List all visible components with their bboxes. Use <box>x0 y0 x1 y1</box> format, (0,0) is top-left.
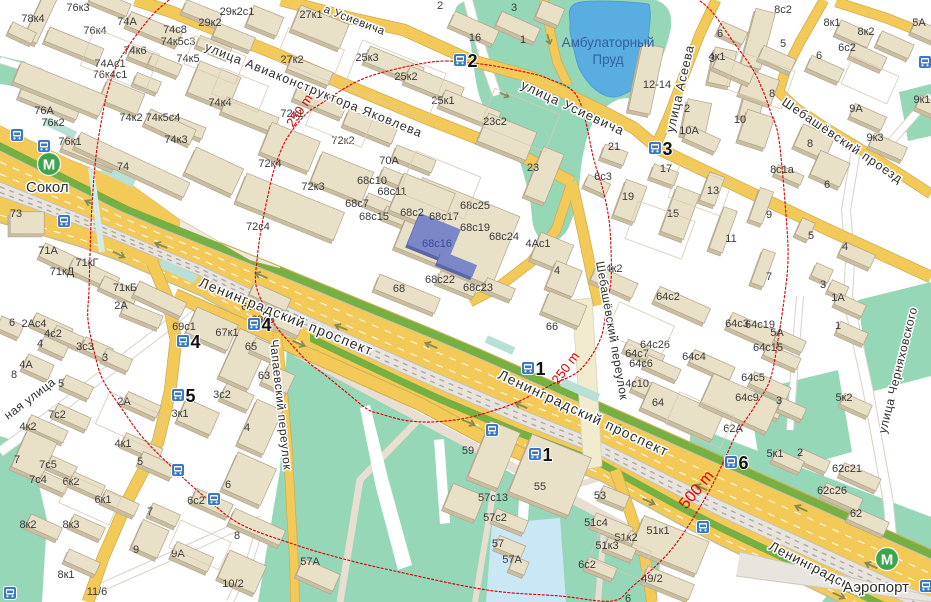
svg-text:5: 5 <box>58 378 64 390</box>
svg-text:55: 55 <box>534 481 546 493</box>
svg-text:6с2: 6с2 <box>187 495 205 507</box>
svg-text:68с17: 68с17 <box>429 211 459 223</box>
svg-text:64с15: 64с15 <box>753 342 783 354</box>
svg-text:1: 1 <box>536 359 546 379</box>
svg-text:13: 13 <box>707 185 719 197</box>
svg-text:4с2: 4с2 <box>44 328 62 340</box>
svg-text:5к2: 5к2 <box>835 392 852 404</box>
svg-text:6с3: 6с3 <box>594 171 612 183</box>
svg-text:62: 62 <box>850 508 862 520</box>
svg-text:Аэропорт: Аэропорт <box>843 579 909 596</box>
svg-text:Сокол: Сокол <box>26 179 69 196</box>
svg-text:4: 4 <box>262 315 272 335</box>
svg-text:76к1: 76к1 <box>58 136 81 148</box>
svg-text:2А: 2А <box>114 300 128 312</box>
svg-text:68с23: 68с23 <box>463 282 493 294</box>
svg-text:57с2: 57с2 <box>483 512 507 524</box>
svg-text:1: 1 <box>835 320 841 332</box>
svg-text:57А: 57А <box>502 554 522 566</box>
svg-text:72к4: 72к4 <box>258 158 281 170</box>
svg-text:3: 3 <box>663 139 673 159</box>
svg-text:57с13: 57с13 <box>478 492 508 504</box>
svg-text:78к4: 78к4 <box>21 13 44 25</box>
svg-text:49/2: 49/2 <box>641 573 662 585</box>
svg-text:4: 4 <box>244 422 250 434</box>
svg-text:8: 8 <box>807 138 813 150</box>
svg-text:7: 7 <box>147 506 153 518</box>
svg-text:74к5с3: 74к5с3 <box>161 36 196 48</box>
svg-text:9: 9 <box>766 209 772 221</box>
svg-text:59: 59 <box>462 445 474 457</box>
svg-text:3: 3 <box>820 279 826 291</box>
svg-text:3: 3 <box>776 395 782 407</box>
svg-text:6: 6 <box>824 179 830 191</box>
svg-text:71А: 71А <box>38 245 58 257</box>
svg-text:72с4: 72с4 <box>246 221 270 233</box>
svg-text:71кД: 71кД <box>50 266 75 278</box>
svg-text:62с26: 62с26 <box>817 485 847 497</box>
svg-text:4Ас1: 4Ас1 <box>525 238 550 250</box>
svg-text:Пруд: Пруд <box>592 52 623 67</box>
svg-text:76к4с1: 76к4с1 <box>93 69 128 81</box>
svg-text:4: 4 <box>842 241 848 253</box>
svg-text:68с15: 68с15 <box>359 211 389 223</box>
svg-text:57А: 57А <box>300 556 320 568</box>
svg-text:68с16: 68с16 <box>422 238 452 250</box>
svg-text:2: 2 <box>468 51 478 71</box>
svg-text:72к3: 72к3 <box>301 181 324 193</box>
svg-text:68с2: 68с2 <box>400 207 424 219</box>
svg-text:71кБ: 71кБ <box>113 282 137 294</box>
svg-text:23: 23 <box>527 162 539 174</box>
svg-text:10А: 10А <box>679 125 699 137</box>
svg-text:67к1: 67к1 <box>215 327 238 339</box>
svg-text:74к2: 74к2 <box>119 112 142 124</box>
svg-text:51с4: 51с4 <box>584 517 608 529</box>
svg-text:5: 5 <box>808 230 814 242</box>
svg-text:53: 53 <box>594 490 606 502</box>
svg-text:6: 6 <box>816 50 822 62</box>
svg-text:68с22: 68с22 <box>425 274 455 286</box>
svg-text:4к1: 4к1 <box>114 438 131 450</box>
svg-text:68с24: 68с24 <box>489 231 519 243</box>
svg-text:3: 3 <box>511 2 517 14</box>
svg-text:7с5: 7с5 <box>39 459 57 471</box>
svg-text:6с2: 6с2 <box>838 42 856 54</box>
svg-text:73: 73 <box>10 208 22 220</box>
svg-text:17: 17 <box>660 163 672 175</box>
svg-text:3с3: 3с3 <box>76 341 94 353</box>
svg-text:8к2: 8к2 <box>857 26 874 38</box>
svg-text:8к1: 8к1 <box>823 17 840 29</box>
svg-text:8к2: 8к2 <box>19 519 36 531</box>
svg-text:76к2: 76к2 <box>41 117 64 129</box>
svg-text:5: 5 <box>186 386 196 406</box>
svg-text:8к1: 8к1 <box>57 569 74 581</box>
svg-text:4: 4 <box>37 338 43 350</box>
svg-text:71кГ: 71кГ <box>75 257 98 269</box>
svg-text:74к5с4: 74к5с4 <box>146 112 181 124</box>
svg-text:27к1: 27к1 <box>299 9 322 21</box>
svg-text:70А: 70А <box>379 155 399 167</box>
svg-text:6с2: 6с2 <box>578 559 596 571</box>
svg-text:7: 7 <box>14 454 20 466</box>
svg-text:6: 6 <box>717 28 723 40</box>
svg-text:74к6: 74к6 <box>123 45 146 57</box>
svg-text:27к2: 27к2 <box>280 54 303 66</box>
svg-text:68с7: 68с7 <box>345 198 369 210</box>
svg-text:62А: 62А <box>723 423 743 435</box>
svg-text:3с2: 3с2 <box>213 389 231 401</box>
svg-text:65: 65 <box>245 341 257 353</box>
svg-text:11/6: 11/6 <box>87 586 108 598</box>
svg-text:62с21: 62с21 <box>832 463 862 475</box>
svg-text:23с2: 23с2 <box>483 116 507 128</box>
svg-text:6: 6 <box>739 453 749 473</box>
svg-text:5: 5 <box>137 456 143 468</box>
svg-text:4: 4 <box>554 265 560 277</box>
svg-text:7: 7 <box>766 271 772 283</box>
svg-text:6: 6 <box>625 593 631 602</box>
svg-text:66: 66 <box>546 321 558 333</box>
svg-text:51к1: 51к1 <box>646 525 669 537</box>
svg-text:9А: 9А <box>849 103 863 115</box>
svg-text:8: 8 <box>234 530 240 542</box>
svg-text:4к1: 4к1 <box>708 51 725 63</box>
svg-text:10: 10 <box>734 114 746 126</box>
svg-text:7с2: 7с2 <box>48 409 66 421</box>
svg-text:64с9: 64с9 <box>735 392 759 404</box>
svg-text:10/2: 10/2 <box>222 578 243 590</box>
svg-text:4к2: 4к2 <box>19 421 36 433</box>
svg-text:64: 64 <box>652 397 664 409</box>
svg-text:6: 6 <box>9 317 15 329</box>
svg-text:2: 2 <box>437 0 443 12</box>
svg-text:76А: 76А <box>34 105 54 117</box>
svg-text:74к4: 74к4 <box>208 97 231 109</box>
svg-text:64с5: 64с5 <box>741 372 765 384</box>
svg-text:19: 19 <box>622 191 634 203</box>
svg-text:64с4: 64с4 <box>682 351 706 363</box>
svg-text:1: 1 <box>520 34 526 46</box>
svg-text:8: 8 <box>769 88 775 100</box>
svg-text:1А: 1А <box>831 292 845 304</box>
svg-text:68с25: 68с25 <box>460 200 490 212</box>
svg-text:11: 11 <box>725 233 736 245</box>
svg-text:6к1: 6к1 <box>94 494 111 506</box>
svg-text:74к3: 74к3 <box>164 134 187 146</box>
svg-text:25к3: 25к3 <box>355 52 378 64</box>
svg-text:51к3: 51к3 <box>595 540 618 552</box>
svg-text:68: 68 <box>393 283 405 295</box>
svg-text:2: 2 <box>797 447 803 459</box>
svg-text:76к4: 76к4 <box>83 25 106 37</box>
svg-text:4: 4 <box>191 332 201 352</box>
svg-text:5А: 5А <box>770 327 784 339</box>
svg-text:9к3: 9к3 <box>866 132 883 144</box>
svg-text:7с4: 7с4 <box>29 474 47 486</box>
svg-text:8с2: 8с2 <box>774 4 792 16</box>
svg-text:6: 6 <box>225 479 231 491</box>
svg-text:5к1: 5к1 <box>766 448 783 460</box>
svg-text:5: 5 <box>780 38 786 50</box>
svg-text:1: 1 <box>543 445 553 465</box>
svg-text:М: М <box>43 157 56 174</box>
svg-text:4А: 4А <box>19 359 33 371</box>
svg-text:29к2с1: 29к2с1 <box>220 6 255 18</box>
svg-text:9: 9 <box>133 544 139 556</box>
svg-text:15: 15 <box>667 208 679 220</box>
svg-text:М: М <box>881 552 894 569</box>
svg-text:3к1: 3к1 <box>171 408 188 420</box>
svg-text:9к1: 9к1 <box>913 94 930 106</box>
svg-text:74А: 74А <box>117 16 137 28</box>
svg-text:74с8: 74с8 <box>163 24 187 36</box>
svg-text:64с2: 64с2 <box>656 291 680 303</box>
svg-text:76к3: 76к3 <box>66 2 89 14</box>
svg-text:16: 16 <box>469 32 481 44</box>
svg-text:29к2: 29к2 <box>198 17 221 29</box>
svg-text:2: 2 <box>684 103 690 115</box>
svg-text:25к2: 25к2 <box>394 71 417 83</box>
svg-text:63: 63 <box>258 370 270 382</box>
svg-text:68с11: 68с11 <box>377 186 406 198</box>
svg-text:74: 74 <box>117 161 129 173</box>
svg-text:64с6: 64с6 <box>629 358 653 370</box>
svg-text:12-14: 12-14 <box>643 79 671 91</box>
svg-text:5А: 5А <box>912 17 926 29</box>
svg-text:2Ас4: 2Ас4 <box>21 318 46 330</box>
svg-text:8с1а: 8с1а <box>770 164 795 176</box>
svg-text:3: 3 <box>102 352 108 364</box>
svg-text:21: 21 <box>608 141 620 153</box>
svg-text:74к5: 74к5 <box>176 53 199 65</box>
svg-text:8к3: 8к3 <box>62 519 79 531</box>
svg-text:57: 57 <box>492 538 504 550</box>
svg-text:68с19: 68с19 <box>460 222 490 234</box>
svg-text:Амбулаторный: Амбулаторный <box>562 35 655 50</box>
svg-text:8: 8 <box>11 369 17 381</box>
